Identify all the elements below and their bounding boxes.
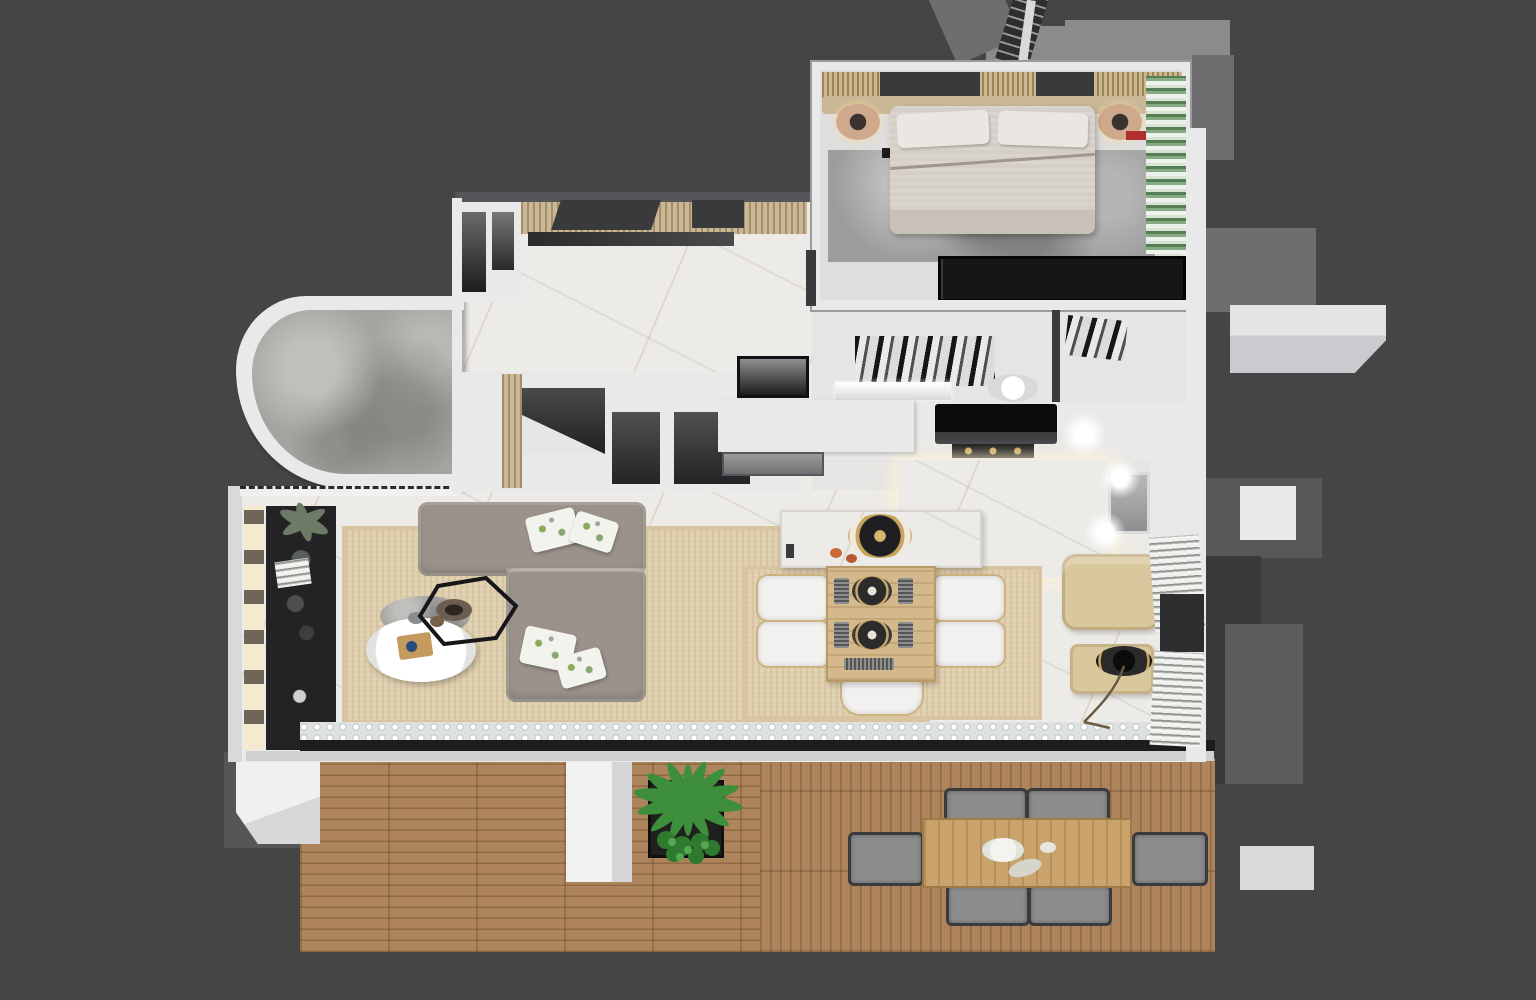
- kitchen-tall-cabinet: [737, 356, 809, 398]
- kitchen-light-b: [1100, 458, 1140, 498]
- placemat-d: [898, 622, 913, 648]
- palm-plant: [608, 762, 768, 872]
- cooktop: [952, 444, 1034, 458]
- entry-left-wall: [452, 198, 462, 494]
- bed-pillow-left: [896, 110, 990, 149]
- wc-marble-floor: [1064, 315, 1128, 361]
- floor-outlet: [786, 544, 794, 558]
- living-window-band: [240, 486, 458, 496]
- entry-closet-floor-b: [492, 212, 514, 270]
- bathroom-marble-shower: [855, 336, 995, 386]
- entry-closet-floor-a: [462, 212, 486, 292]
- outdoor-chair-bottom-right: [1028, 884, 1112, 926]
- dishwasher-front: [722, 452, 824, 476]
- kitchen-light-a: [1062, 412, 1106, 456]
- outdoor-chair-right: [1132, 832, 1208, 886]
- kitchen-peninsula: [718, 400, 914, 452]
- place-setting-top: [852, 576, 892, 606]
- bookshelf-cabinet: [1160, 594, 1204, 652]
- media-wall-backlight: [244, 506, 264, 750]
- place-setting-bottom: [852, 620, 892, 650]
- toilet: [988, 374, 1038, 402]
- right-slab-lower: [1225, 624, 1303, 784]
- window-sill-decor: [300, 722, 1200, 740]
- storage-wood-cabinet: [502, 374, 522, 488]
- dining-chair-left-2: [756, 620, 832, 668]
- outdoor-cup: [1040, 842, 1056, 853]
- outdoor-chair-left: [848, 832, 924, 886]
- outdoor-chair-bottom-left: [946, 884, 1030, 926]
- bath-top-wall: [812, 300, 1195, 310]
- dining-chair-left-1: [756, 574, 832, 622]
- sliding-door-track: [300, 740, 1215, 751]
- media-wall-plant: [268, 496, 338, 556]
- bedroom-door-jamb: [806, 250, 816, 306]
- curved-terrace-stone-floor: [252, 310, 464, 474]
- bed-pillow-right: [997, 110, 1088, 147]
- dining-chair-right-1: [930, 574, 1006, 622]
- right-ledge-beam: [1230, 305, 1386, 373]
- media-wall-books: [274, 558, 311, 588]
- right-slab-upper: [1204, 228, 1316, 312]
- placemat-e: [844, 658, 894, 670]
- tan-armchair: [1062, 554, 1160, 630]
- bookshelf-lower: [1150, 651, 1205, 747]
- dark-wardrobe: [938, 256, 1186, 302]
- nightstand-left: [836, 104, 880, 140]
- bedroom-shelf-plants: [1146, 76, 1186, 254]
- cooker-hood: [935, 404, 1057, 444]
- bottom-right-ledge: [1240, 846, 1314, 890]
- hexagon-side-table: [408, 572, 528, 652]
- outdoor-table: [922, 818, 1132, 888]
- fruit-a: [830, 548, 842, 558]
- centerpiece-bowl: [848, 514, 912, 558]
- placemat-a: [834, 578, 849, 604]
- right-ledge-small: [1240, 486, 1296, 540]
- bathroom-divider-wall: [1052, 310, 1060, 402]
- entry-door-mat: [528, 232, 734, 246]
- floorplan-render: [0, 0, 1536, 1000]
- dining-chair-right-2: [930, 620, 1006, 668]
- bathroom-vanity: [835, 382, 951, 400]
- storage-divider-wall: [660, 412, 674, 484]
- entry-dark-panel-b: [692, 200, 744, 228]
- fruit-b: [846, 554, 857, 563]
- arc-lamp-stem: [1080, 660, 1160, 730]
- bed-foot-throw: [890, 210, 1095, 234]
- entry-dark-panel-a: [551, 200, 661, 230]
- kitchen-light-c: [1085, 512, 1125, 552]
- left-outer-wall: [228, 486, 242, 762]
- outdoor-plate: [982, 838, 1024, 862]
- door-sill: [246, 751, 1214, 761]
- placemat-b: [898, 578, 913, 604]
- placemat-c: [834, 622, 849, 648]
